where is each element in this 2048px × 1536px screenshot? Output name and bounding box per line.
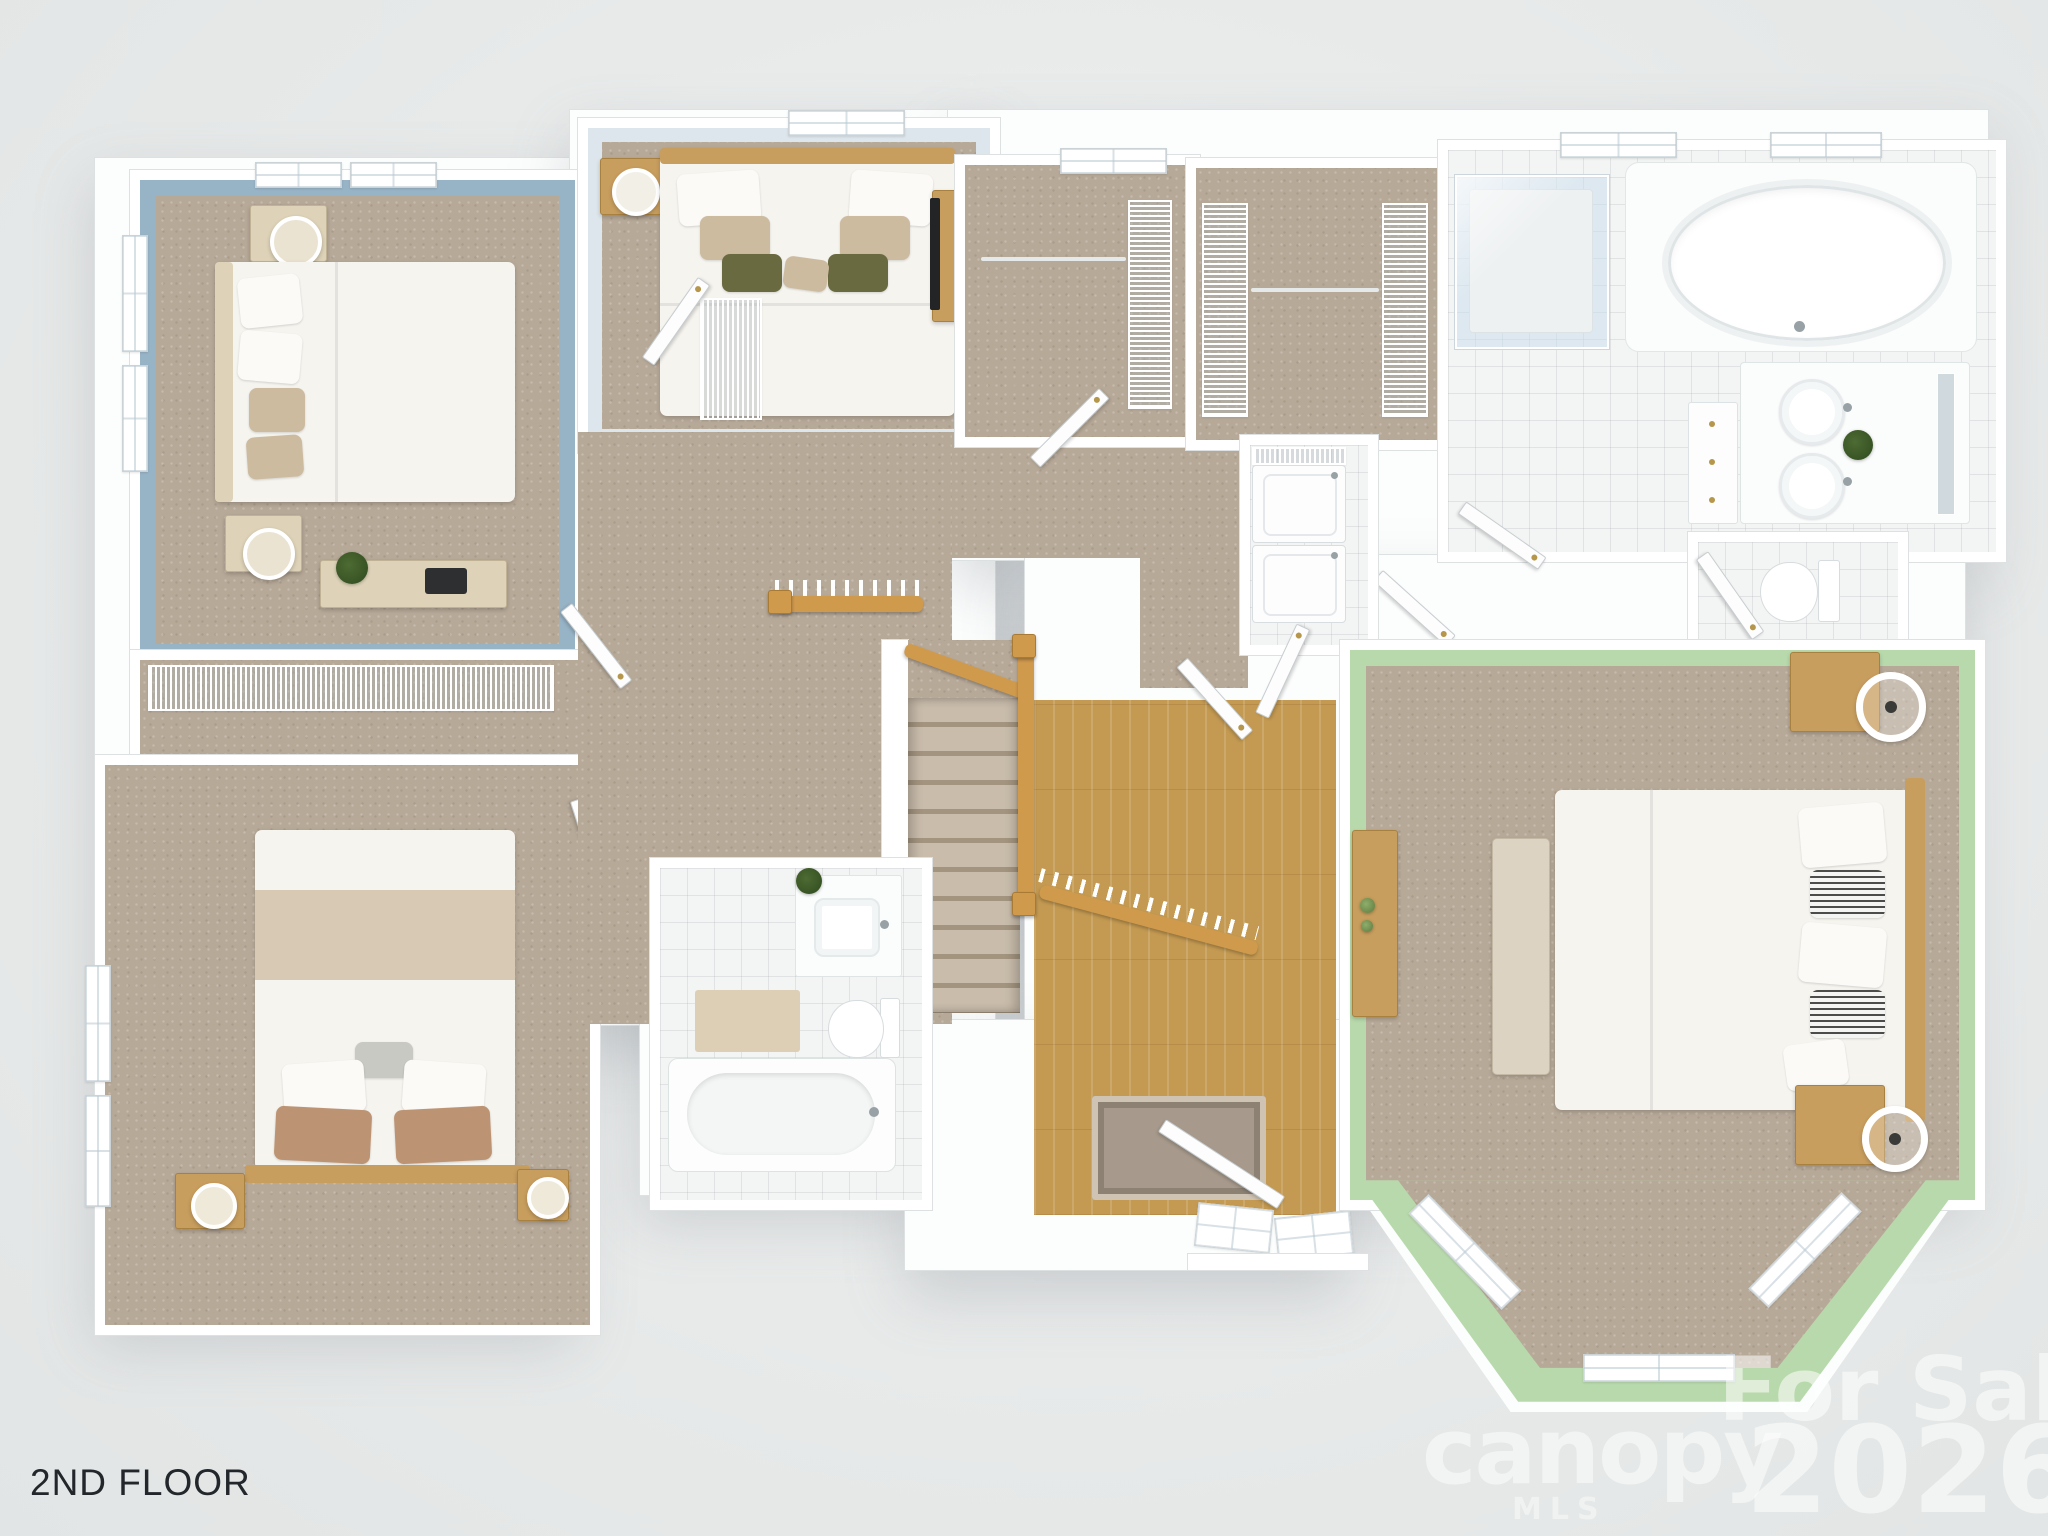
floorplan-render: For Sale 2026 canopy MLS 2ND FLOOR: [0, 0, 2048, 1536]
closet-wire-shelf: [1382, 203, 1428, 417]
mirror: [1937, 373, 1955, 515]
bed: [255, 830, 515, 1170]
pillow: [722, 254, 782, 292]
vase: [1361, 920, 1373, 932]
table-lamp: [243, 528, 295, 580]
window: [1060, 148, 1167, 174]
master-bedroom: [1340, 640, 1985, 1210]
table-lamp: [527, 1177, 569, 1219]
washer: [1252, 465, 1346, 543]
drawer-knob: [1709, 497, 1715, 503]
cabinet-drawers: [1688, 402, 1738, 524]
pillow: [237, 329, 303, 384]
potted-plant: [336, 552, 368, 584]
headboard: [215, 262, 233, 502]
window: [1560, 132, 1677, 158]
pillow: [828, 254, 888, 292]
bench: [1492, 838, 1550, 1075]
foyer-window: [1194, 1202, 1274, 1254]
toilet-bowl: [828, 1000, 884, 1058]
window: [255, 162, 342, 188]
tv-screen: [930, 198, 940, 310]
bath-mat: [695, 990, 800, 1052]
bedroom-top-middle: [578, 118, 1000, 453]
duvet-fold: [335, 262, 338, 502]
dryer-control: [1331, 552, 1338, 559]
watermark-brand-logo: canopy: [1422, 1398, 1781, 1505]
window: [122, 365, 148, 472]
window: [85, 965, 111, 1082]
tub-faucet: [869, 1107, 879, 1117]
potted-plant: [796, 868, 822, 894]
pillow: [1810, 990, 1885, 1038]
washer-lid: [1263, 474, 1337, 536]
toilet-bowl: [1760, 562, 1818, 622]
garden-tub-platform: [1625, 162, 1977, 352]
walk-in-closet-a: [955, 155, 1200, 447]
headboard: [245, 1165, 530, 1183]
floor-label: 2ND FLOOR: [30, 1462, 251, 1504]
closet-rod: [1251, 288, 1379, 292]
pillow: [1798, 921, 1888, 988]
closet-wire-shelf: [1202, 203, 1248, 417]
bathtub: [668, 1058, 896, 1172]
dresser: [1352, 830, 1398, 1017]
pillow: [1798, 801, 1888, 868]
vanity-sink: [814, 898, 880, 957]
walk-in-closet-b: [1186, 158, 1456, 450]
stair-railing: [775, 596, 923, 612]
pillow: [394, 1106, 493, 1165]
pillow: [1782, 1038, 1850, 1092]
pillow: [246, 434, 305, 480]
watermark-brand-mls: MLS: [1512, 1492, 1607, 1527]
headboard: [1905, 778, 1925, 1122]
pillow: [249, 388, 305, 432]
window: [1770, 132, 1882, 158]
closet-wire-shelf: [700, 298, 762, 420]
headboard: [660, 148, 955, 164]
window: [85, 1095, 111, 1207]
master-bathroom: [1438, 140, 2006, 562]
faucet: [1843, 477, 1852, 486]
toilet-tank: [1818, 560, 1840, 622]
window: [788, 110, 905, 136]
window: [122, 235, 148, 352]
ring-lamp: [1856, 672, 1926, 742]
pillow: [1810, 870, 1885, 918]
vanity-sink: [1779, 453, 1845, 519]
potted-plant: [1843, 430, 1873, 460]
closet-rod: [981, 257, 1126, 261]
blanket: [255, 890, 515, 980]
hall-bathroom: [650, 858, 932, 1210]
shower-glass-edge: [1457, 177, 1607, 347]
drawer-knob: [1709, 459, 1715, 465]
table-lamp: [612, 168, 660, 216]
dryer: [1252, 545, 1346, 623]
closet-wire-shelf: [148, 665, 554, 711]
watermark-year: 2026: [1745, 1402, 2048, 1536]
pillow: [274, 1106, 373, 1165]
newel-post: [1012, 634, 1036, 658]
railing-balusters: [775, 580, 923, 596]
bay-window-pane: [1583, 1354, 1735, 1382]
laundry-closet: [1240, 435, 1378, 655]
newel-post: [768, 590, 792, 614]
drawer-knob: [1709, 421, 1715, 427]
faucet: [1843, 403, 1852, 412]
closet-wire-shelf: [1128, 200, 1172, 409]
bedroom-bottom-left: [95, 755, 600, 1335]
bed: [1555, 790, 1915, 1110]
table-lamp: [191, 1183, 237, 1229]
newel-post: [1012, 892, 1036, 916]
dryer-lid: [1263, 554, 1337, 616]
ring-lamp: [1862, 1106, 1928, 1172]
stair-railing: [1018, 642, 1034, 898]
window: [350, 162, 437, 188]
window-sill: [1188, 1254, 1368, 1270]
bed: [215, 262, 515, 502]
glass-shower: [1455, 175, 1609, 349]
pillow: [782, 255, 830, 293]
vanity-sink: [1779, 379, 1845, 445]
pillow: [237, 273, 304, 329]
table-lamp: [270, 216, 322, 268]
washer-control: [1331, 472, 1338, 479]
garden-tub: [1662, 179, 1952, 347]
closet-wire-shelf: [1252, 447, 1346, 465]
faucet: [880, 920, 889, 929]
bedroom-top-left: [130, 170, 585, 670]
tub-basin: [687, 1073, 875, 1155]
duvet-fold: [1650, 790, 1653, 1110]
tub-faucet: [1794, 321, 1805, 332]
laptop: [425, 568, 467, 594]
vase: [1360, 898, 1375, 913]
